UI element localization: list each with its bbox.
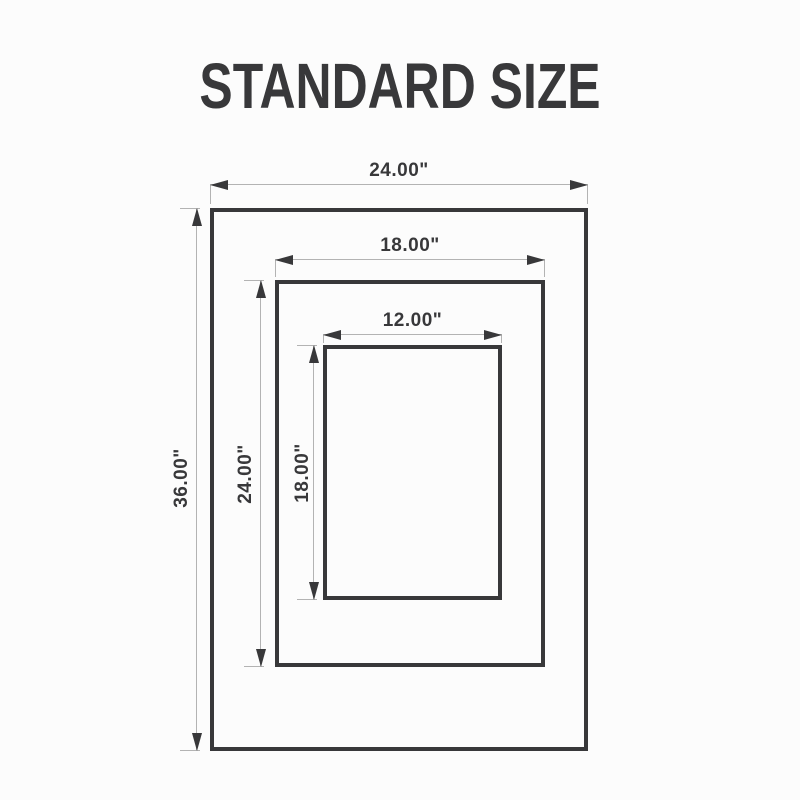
- dimension-line: [323, 334, 502, 335]
- size-diagram: 24.00" 18.00" 12.00" 36.00" 24.00": [0, 0, 800, 800]
- dim-label-inner-height: 18.00": [292, 418, 314, 528]
- dim-label-middle-height: 24.00": [235, 419, 257, 529]
- arrow-up-icon: [256, 280, 266, 298]
- arrow-left-icon: [275, 255, 293, 265]
- arrow-down-icon: [256, 649, 266, 667]
- dimension-line: [210, 184, 588, 185]
- dim-label-middle-width: 18.00": [275, 236, 545, 256]
- dimension-line: [196, 208, 197, 751]
- arrow-right-icon: [484, 330, 502, 340]
- arrow-down-icon: [192, 733, 202, 751]
- arrow-left-icon: [323, 330, 341, 340]
- dimension-line: [260, 280, 261, 667]
- dim-label-outer-height: 36.00": [171, 423, 193, 533]
- arrow-right-icon: [527, 255, 545, 265]
- dim-label-outer-width: 24.00": [210, 161, 588, 181]
- arrow-left-icon: [210, 180, 228, 190]
- dim-label-inner-width: 12.00": [323, 311, 502, 331]
- arrow-down-icon: [309, 582, 319, 600]
- arrow-right-icon: [570, 180, 588, 190]
- arrow-up-icon: [309, 345, 319, 363]
- inner-frame-rect: [323, 345, 502, 600]
- dimension-line: [275, 259, 545, 260]
- arrow-up-icon: [192, 208, 202, 226]
